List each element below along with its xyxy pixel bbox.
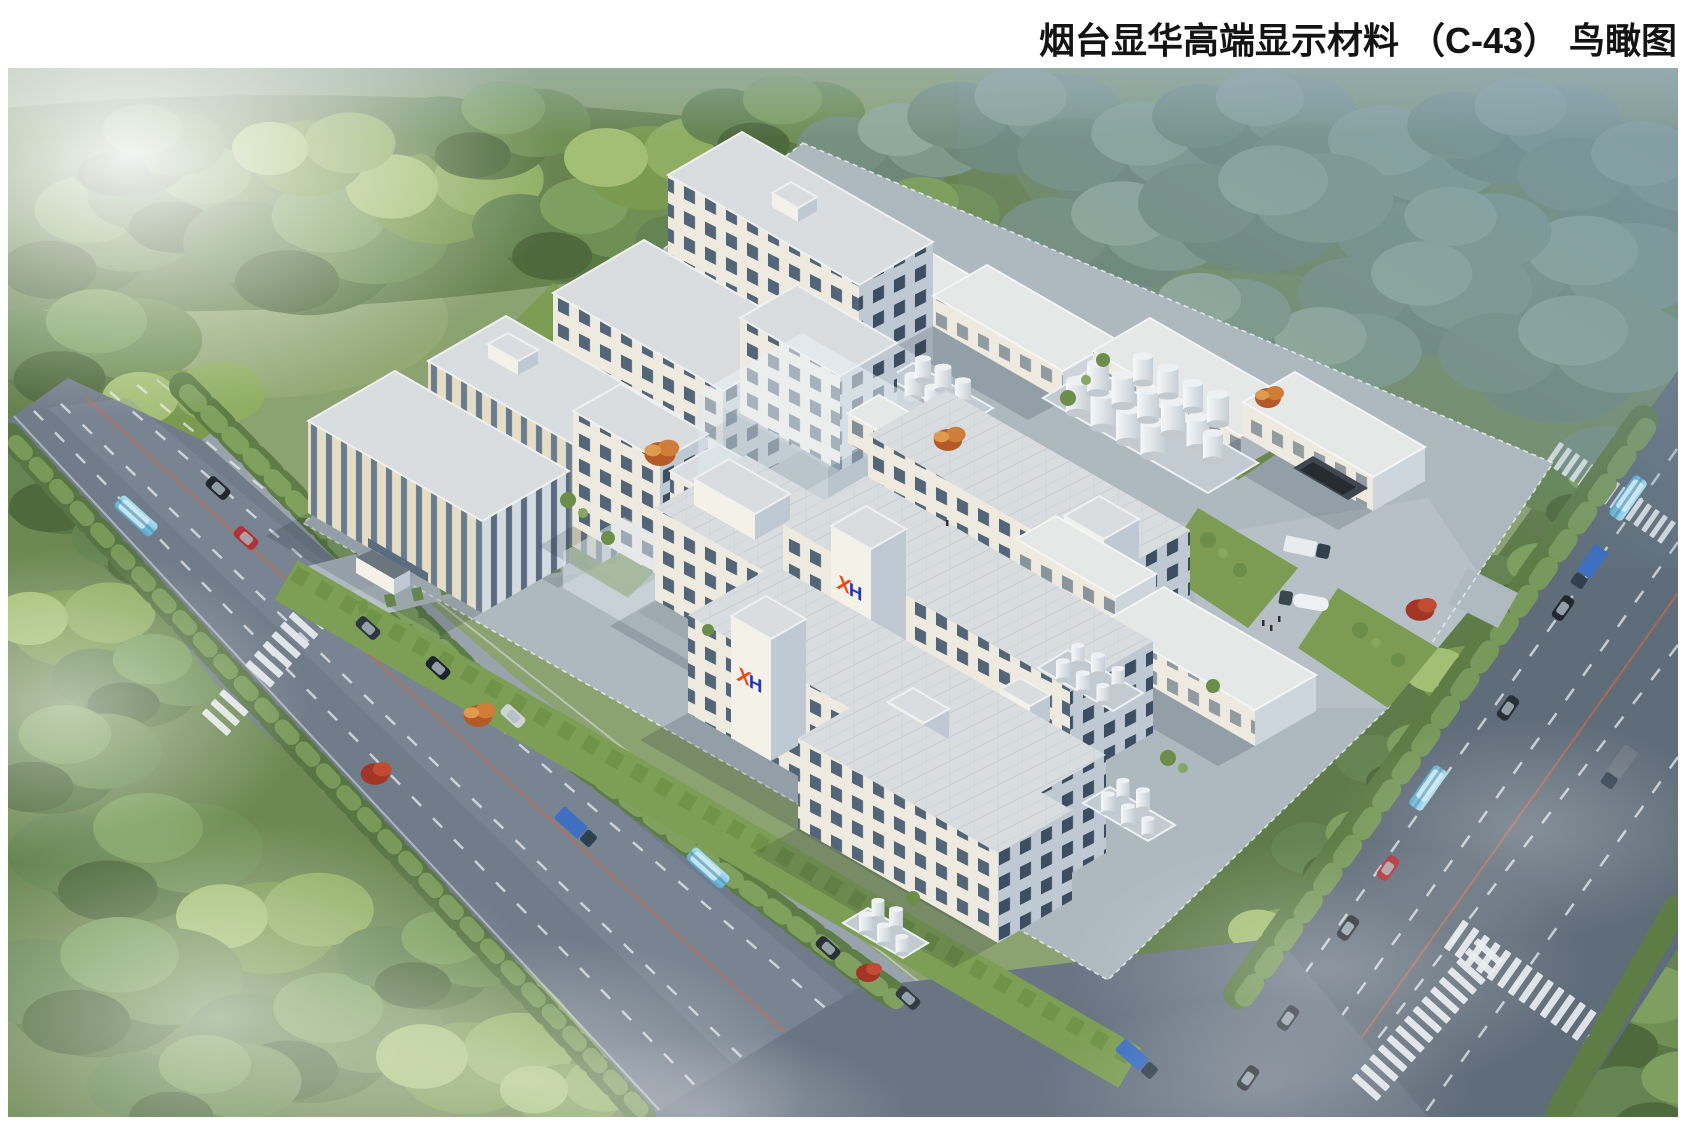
aerial-rendering: X H	[8, 68, 1678, 1117]
rendering-page: 烟台显华高端显示材料 （C-43） 鸟瞰图	[0, 0, 1686, 1125]
page-title: 烟台显华高端显示材料 （C-43） 鸟瞰图	[1039, 12, 1677, 64]
